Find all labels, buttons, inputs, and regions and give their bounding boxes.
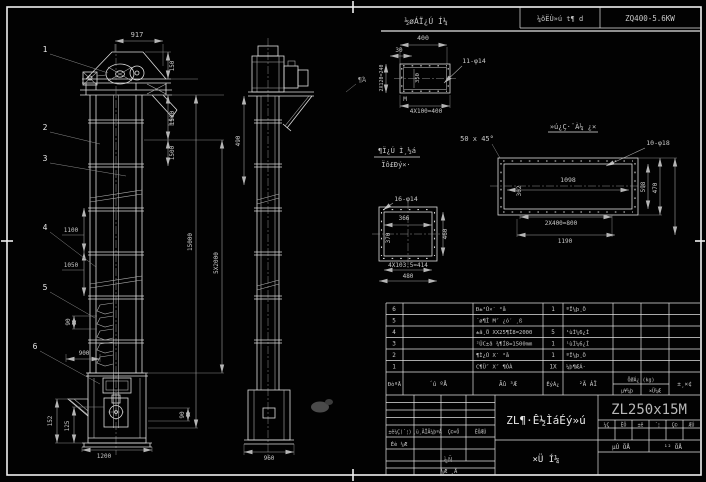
side-view: 490 960 ¶Ά [235, 38, 367, 462]
dim-150: 150 [169, 60, 176, 71]
bom-5-qty: 1X [549, 364, 557, 371]
dim-900: 900 [79, 350, 90, 357]
buckets [97, 303, 113, 366]
dim-460: 460 [442, 228, 449, 239]
chamfer-note: 50 x 45° [460, 135, 494, 143]
sh1: ¼Ç [604, 423, 610, 429]
sh5: Ç© [672, 423, 678, 429]
gearbox-model: ZQ400-5.6KW [625, 14, 675, 23]
front-view [68, 44, 177, 455]
rev-h-mark: ±ê¼Ç(´¦) [388, 429, 411, 436]
view-title: ½øÁÏ¿Ú Í¼ [404, 15, 448, 26]
bom-3-no: 3 [392, 341, 396, 348]
dim-4x103: 4X103.5=414 [388, 262, 428, 269]
drawing-frame [1, 1, 705, 481]
rev-h-sign: Ç©×Ö [448, 429, 460, 436]
dim-1098: 1098 [560, 176, 576, 184]
balloon-3: 3 [43, 154, 48, 163]
bom-h-code: ´ú ºÅ [429, 381, 447, 388]
bom-0-mat: ºÏ¼þ¸Ö [566, 306, 586, 313]
bom-5-mat: ¼þ¶ÆÁ· [566, 364, 586, 371]
bom-2-no: 4 [392, 329, 396, 336]
bom-row: 4 ±â¸Ö XX25¶Í8=2000 5 ¹ùÌ¼6¿Í [392, 328, 589, 336]
dim-90b: 90 [179, 411, 186, 419]
dim-480: 480 [403, 273, 414, 280]
dim-5x2000: 5X2000 [213, 252, 220, 274]
bom-4-name: ¶Ì¿Û X′ °å [476, 352, 509, 359]
rev-h-doc: ¸ü¸ÄÎÄ¼þºÅ [413, 429, 442, 436]
approval-stamp: ¼Ñ [444, 455, 452, 464]
bottom-note: ¼Æ ¸Å [441, 468, 458, 475]
sheet-total: ¹² ÕÅ [664, 444, 682, 451]
model-number: ZL250x15M [611, 402, 687, 418]
bom-2-mat: ¹ùÌ¼6¿Í [566, 328, 589, 336]
bom-3-mat: ¹ùÌ¼6¿Í [566, 340, 589, 348]
bom-4-no: 2 [392, 352, 396, 359]
bom-2-qty: 5 [551, 329, 555, 336]
weld-note: ¶Ά [358, 76, 367, 84]
bom-1-name: ´ø¶Ì M″ ¿ó′ ¸ß [476, 318, 523, 325]
dim-90: 90 [65, 318, 72, 326]
dim-960: 960 [264, 455, 275, 462]
bom-5-name: C¶Ü″ X″ ¶ÓÀ [476, 364, 513, 371]
balloon-5: 5 [43, 283, 48, 292]
dim-302: 302 [516, 185, 523, 196]
sh3: ±ê [638, 422, 644, 429]
detail-rect-flange: »ú¿Ç·¨À¼ ¿× 50 x 45° 10-φ18 1098 302 598… [460, 122, 677, 245]
dim-1100: 1100 [64, 227, 79, 234]
dim-598: 598 [640, 181, 647, 192]
callout-16-phi14: 16-φ14 [394, 195, 418, 203]
dim-2x400: 2X400=800 [545, 220, 578, 227]
bom-3-name: ²ÛC±â ¾¶Í8=1500mm [476, 340, 533, 348]
square-title-bottom: Ïô£Ðý×· [381, 160, 411, 169]
dim-917: 917 [131, 31, 144, 39]
bom-h-mat: ²Ä ÁÏ [579, 381, 597, 388]
balloon-2: 2 [43, 123, 48, 132]
smudge-mark [311, 399, 333, 413]
bom-4-qty: 1 [551, 352, 555, 359]
bom-h-qty: ÊýÁ¿ [546, 380, 559, 388]
balloon-labels: 1 2 3 4 5 6 [33, 45, 126, 384]
sheet-no: µÚ ÕÅ [612, 444, 630, 451]
title-block: ±ê¼Ç(´¦) ¸ü¸ÄÎÄ¼þºÅ Ç©×Ö ÈÕÆÚ Éè ¼Æ ¼Ñ ¼… [386, 395, 700, 475]
dim-4x100: 4X100=400 [410, 108, 443, 115]
sh6: ÆÚ [689, 422, 695, 429]
dim-30: 30 [395, 47, 403, 54]
bom-h-unit: µ¥¼þ [621, 389, 633, 395]
sh4: ´¦ [655, 423, 661, 429]
bom-0-qty: 1 [551, 306, 555, 313]
dim-470: 470 [652, 182, 659, 193]
dim-152: 152 [47, 415, 54, 426]
bom-4-mat: ºÏ¼þ¸Ö [566, 352, 586, 359]
engineering-drawing: ¼õËÙ»ú t¶ d ZQ400-5.6KW ½øÁÏ¿Ú Í¼ 400 [0, 0, 706, 482]
rect-detail-title: »ú¿Ç·¨À¼ ¿× [550, 122, 596, 131]
dim-370: 370 [385, 232, 392, 243]
bom-row: 6 Ð±²Û×′ °å 1 ºÏ¼þ¸Ö [392, 306, 586, 313]
dim-15000: 15000 [187, 233, 194, 251]
bom-0-no: 6 [392, 306, 396, 313]
bom-h-remark: ±¸×¢ [677, 381, 692, 388]
bom-3-qty: 1 [551, 341, 555, 348]
bom-h-name: Ãû ³Æ [499, 381, 517, 388]
callout-10-phi18: 10-φ18 [646, 139, 670, 147]
dim-1190: 1190 [558, 238, 573, 245]
bom-row: 1 C¶Ü″ X″ ¶ÓÀ 1X ¼þ¶ÆÁ· [392, 364, 586, 371]
drawing-title: ZL¶·Ê½ÌáÉý»ú [506, 414, 585, 427]
square-title-top: ¶Ï¿Ú Ì¸½á [378, 146, 416, 155]
dim-125: 125 [64, 420, 71, 431]
callout-11-phi14: 11-φ14 [462, 57, 486, 65]
sh2: ÈÕ [621, 421, 627, 429]
bom-0-name: Ð±²Û×′ °å [476, 306, 506, 313]
rev-h-date: ÈÕÆÚ [475, 428, 487, 436]
bom-h-weight: ÖØÁ¿ (kg) [627, 377, 654, 384]
bom-5-no: 1 [392, 364, 396, 371]
note-m: M [403, 96, 407, 103]
dim-350: 350 [415, 73, 421, 83]
top-header: ¼õËÙ»ú t¶ d ZQ400-5.6KW ½øÁÏ¿Ú Í¼ 400 [381, 7, 701, 42]
gearbox-label: ¼õËÙ»ú t¶ d [537, 14, 583, 23]
drawing-subtitle: ×Ü Í¼ [532, 453, 559, 465]
view-scale: 400 [417, 34, 429, 42]
dim-1500b: 1500 [169, 145, 176, 160]
dim-366: 366 [399, 215, 410, 222]
bom-2-name: ±â¸Ö XX25¶Í8=2000 [476, 328, 532, 336]
dim-1050: 1050 [64, 262, 79, 269]
bom-row: 5 ´ø¶Ì M″ ¿ó′ ¸ß [392, 318, 523, 325]
row-design-label: Éè ¼Æ [391, 440, 408, 448]
detail-channel: 30 350 2X120=240 11-φ14 M 4X100=400 [379, 45, 486, 115]
cad-canvas: ¼õËÙ»ú t¶ d ZQ400-5.6KW ½øÁÏ¿Ú Í¼ 400 [0, 0, 706, 482]
bom-h-total: ×Ü¼Æ [649, 388, 661, 395]
dim-1200: 1200 [97, 453, 112, 460]
bom-1-no: 5 [392, 318, 396, 325]
bom-row: 3 ²ÛC±â ¾¶Í8=1500mm 1 ¹ùÌ¼6¿Í [392, 340, 589, 348]
balloon-6: 6 [33, 342, 38, 351]
bom-row: 2 ¶Ì¿Û X′ °å 1 ºÏ¼þ¸Ö [392, 352, 586, 359]
balloon-4: 4 [43, 223, 48, 232]
bom-header: ÐòºÅ ´ú ºÅ Ãû ³Æ ÊýÁ¿ ²Ä ÁÏ ÖØÁ¿ (kg) µ¥… [388, 377, 692, 395]
bom-table: 6 Ð±²Û×′ °å 1 ºÏ¼þ¸Ö 5 ´ø¶Ì M″ ¿ó′ ¸ß 4 … [386, 303, 700, 395]
detail-square-flange: ¶Ï¿Ú Ì¸½á Ïô£Ðý×· 16-φ14 366 370 460 4X1… [372, 146, 449, 281]
dim-240: 2X120=240 [379, 64, 385, 91]
dim-1500a: 1500 [169, 110, 176, 125]
balloon-1: 1 [43, 45, 48, 54]
dim-490: 490 [235, 135, 242, 146]
bom-h-no: ÐòºÅ [388, 381, 402, 388]
